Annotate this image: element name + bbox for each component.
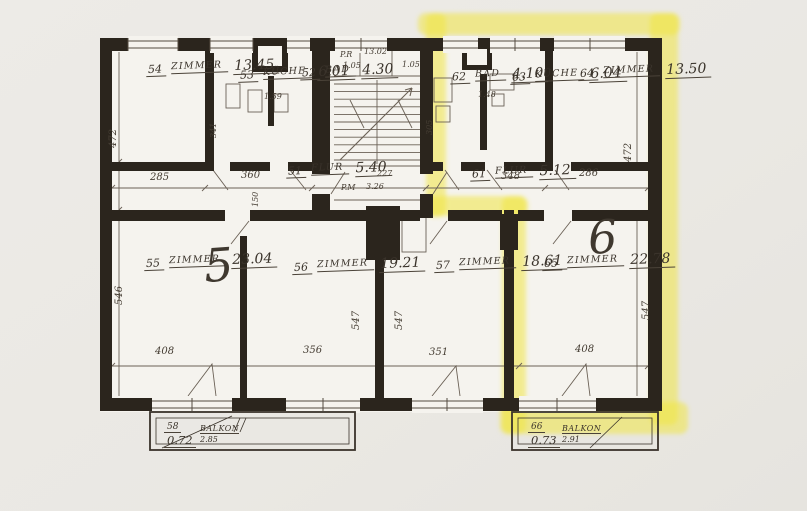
dim-356: 356 bbox=[303, 345, 322, 356]
dim-472-left: 472 bbox=[108, 129, 119, 148]
dim-547-b: 547 bbox=[394, 311, 405, 330]
dim-547-a: 547 bbox=[351, 311, 362, 330]
balcony-66-number: 66 bbox=[528, 422, 545, 433]
dim-348: 348 bbox=[501, 171, 520, 182]
room-51-number: 51 bbox=[286, 165, 306, 179]
dim-351: 351 bbox=[429, 347, 448, 358]
dim-408-right: 408 bbox=[575, 344, 594, 355]
stair-landing-width: 227 bbox=[377, 169, 392, 178]
room-55-number: 55 bbox=[144, 257, 164, 271]
balcony-58-number: 58 bbox=[164, 422, 181, 433]
dim-408-left: 408 bbox=[155, 346, 174, 357]
room-51-name: FLUR bbox=[311, 162, 350, 175]
balcony-66-label: 66 0.73 bbox=[528, 414, 560, 448]
dim-148: 1.48 bbox=[478, 90, 496, 99]
room-62-number: 62 bbox=[450, 71, 470, 85]
dim-159: 1.59 bbox=[264, 92, 282, 101]
dim-285: 285 bbox=[150, 172, 169, 183]
dim-547-c: 547 bbox=[641, 301, 652, 320]
dim-341: 341 bbox=[209, 123, 218, 138]
room-57-name: ZIMMER bbox=[459, 256, 516, 269]
balcony-66-width: 2.91 bbox=[562, 435, 601, 444]
balcony-66-name: BALKON bbox=[562, 424, 601, 434]
room-54-name: ZIMMER bbox=[171, 60, 228, 73]
stair-landing-area: 3.26 bbox=[366, 182, 384, 191]
dim-286: 286 bbox=[579, 168, 598, 179]
balcony-58-name: BALKON bbox=[200, 424, 239, 434]
room-54-number: 54 bbox=[146, 63, 166, 77]
balcony-58-area: 0.72 bbox=[164, 433, 196, 448]
balcony-58-label: 58 0.72 bbox=[164, 414, 196, 448]
balcony-58-name-block: BALKON 2.85 bbox=[200, 416, 239, 444]
dim-305: 305 bbox=[425, 120, 434, 135]
room-56-name: ZIMMER bbox=[317, 258, 374, 271]
room-57-number: 57 bbox=[434, 259, 454, 273]
room-56-number: 56 bbox=[292, 261, 312, 275]
apartment-number-5: 5 bbox=[202, 237, 235, 293]
room-52-area: 4.30 bbox=[361, 62, 399, 79]
dim-360: 360 bbox=[241, 170, 260, 181]
apartment-number-6: 6 bbox=[586, 209, 619, 265]
room-61-number: 61 bbox=[470, 168, 490, 182]
room-65-number: 65 bbox=[542, 257, 562, 271]
stair-top-left-label: P.R bbox=[340, 50, 352, 59]
stair-top-right-value: 1.05 bbox=[402, 60, 420, 69]
balcony-66-name-block: BALKON 2.91 bbox=[562, 416, 601, 444]
dim-150: 150 bbox=[251, 192, 260, 207]
balcony-66-area: 0.73 bbox=[528, 433, 560, 448]
stair-landing-label: P.M bbox=[341, 183, 356, 192]
room-55-area: 23.04 bbox=[231, 251, 278, 269]
floor-plan-scan: 54 ZIMMER 13.45 53 KÜCHE 6.01 52 BAD 4.3… bbox=[0, 0, 807, 511]
balcony-58-width: 2.85 bbox=[200, 435, 239, 444]
room-63-number: 63 bbox=[510, 71, 530, 85]
room-52-number: 52 bbox=[300, 67, 320, 81]
stair-top-left-value: 1.05 bbox=[343, 61, 361, 70]
dim-546: 546 bbox=[114, 286, 125, 305]
stair-top-center-value: 13.02 bbox=[364, 47, 387, 56]
room-56-area: 19.21 bbox=[379, 255, 426, 273]
room-64-number: 64 bbox=[578, 67, 598, 81]
room-64-name: ZIMMER bbox=[603, 64, 660, 77]
dim-472-right: 472 bbox=[623, 143, 634, 162]
room-64-area: 13.50 bbox=[665, 61, 712, 79]
room-61-area: 5.12 bbox=[538, 163, 576, 180]
room-53-number: 53 bbox=[238, 69, 258, 83]
room-65-area: 22.78 bbox=[629, 251, 676, 269]
